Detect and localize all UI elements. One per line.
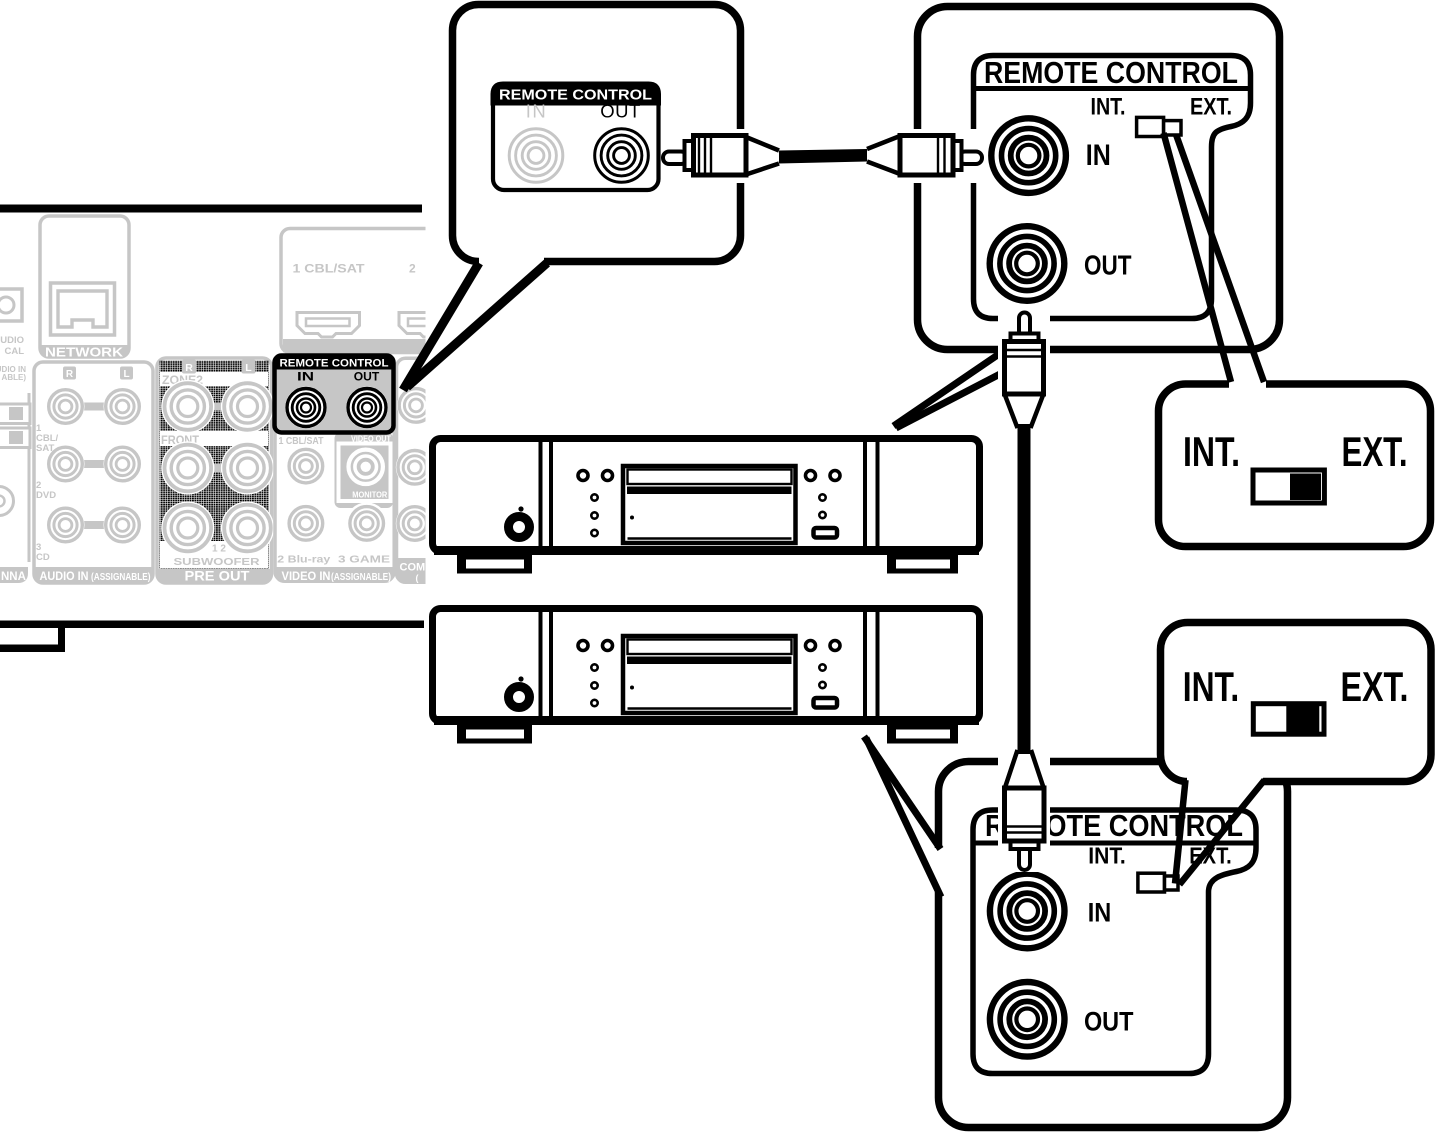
svg-text:OUT: OUT: [1084, 1007, 1134, 1037]
svg-text:COM: COM: [400, 562, 426, 574]
svg-text:AUDIO IN: AUDIO IN: [40, 571, 89, 583]
svg-text:OUT: OUT: [354, 372, 380, 384]
svg-text:DVD: DVD: [36, 490, 56, 501]
svg-text:2: 2: [409, 262, 416, 276]
svg-text:1 2: 1 2: [212, 544, 226, 555]
svg-text:PRE OUT: PRE OUT: [185, 568, 251, 583]
svg-text:IN: IN: [1086, 139, 1111, 172]
svg-text:1 CBL/SAT: 1 CBL/SAT: [293, 262, 366, 276]
svg-text:EXT.: EXT.: [1341, 663, 1409, 710]
svg-text:NNA: NNA: [1, 571, 26, 583]
svg-text:2 Blu-ray: 2 Blu-ray: [277, 555, 331, 566]
svg-text:INT.: INT.: [1088, 843, 1126, 869]
svg-text:VIDEO IN: VIDEO IN: [282, 571, 331, 583]
svg-text:(ASSIGNABLE): (ASSIGNABLE): [331, 571, 391, 583]
svg-text:REMOTE CONTROL: REMOTE CONTROL: [984, 56, 1238, 90]
svg-text:CAL: CAL: [4, 346, 24, 357]
svg-text:IN: IN: [297, 372, 314, 384]
svg-text:1 CBL/SAT: 1 CBL/SAT: [279, 436, 324, 447]
svg-text:ABLE): ABLE): [2, 373, 27, 382]
svg-text:(ASSIGNABLE): (ASSIGNABLE): [91, 571, 151, 583]
svg-text:EXT.: EXT.: [1342, 428, 1408, 475]
svg-text:IN: IN: [526, 101, 548, 122]
svg-text:OUT: OUT: [600, 101, 641, 122]
svg-text:CD: CD: [36, 552, 50, 563]
svg-text:MONITOR: MONITOR: [352, 490, 387, 500]
svg-text:SAT: SAT: [36, 443, 54, 454]
svg-text:UDIO: UDIO: [0, 335, 24, 346]
svg-text:EXT.: EXT.: [1190, 94, 1232, 121]
svg-text:REMOTE CONTROL: REMOTE CONTROL: [280, 358, 389, 370]
svg-text:INT.: INT.: [1183, 663, 1240, 710]
svg-text:L: L: [123, 369, 129, 380]
svg-text:(: (: [416, 573, 419, 583]
svg-text:INT.: INT.: [1091, 94, 1126, 121]
svg-text:R: R: [66, 369, 74, 380]
svg-text:IN: IN: [1088, 898, 1112, 928]
svg-text:OUT: OUT: [1084, 250, 1132, 281]
svg-text:VIDEO OUT: VIDEO OUT: [351, 434, 392, 444]
svg-text:NETWORK: NETWORK: [45, 344, 124, 359]
svg-text:INT.: INT.: [1183, 428, 1240, 475]
svg-text:SUBWOOFER: SUBWOOFER: [174, 556, 261, 568]
svg-text:L: L: [245, 362, 252, 374]
svg-text:3 GAME: 3 GAME: [338, 555, 390, 566]
